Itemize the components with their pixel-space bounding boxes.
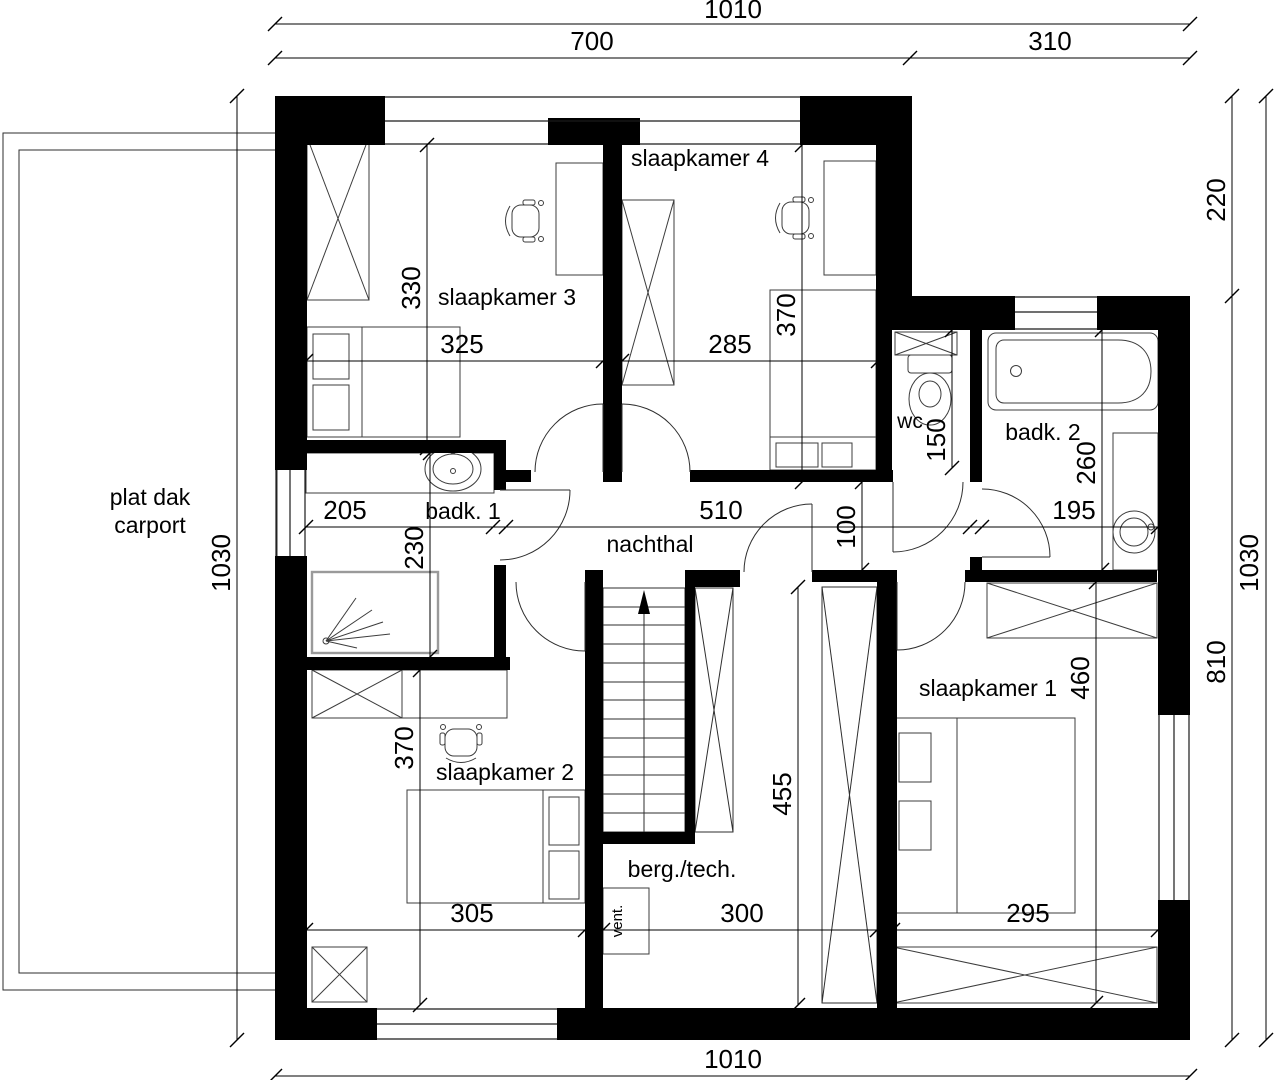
svg-text:305: 305 bbox=[450, 898, 493, 928]
wall-west-upper bbox=[275, 96, 307, 470]
label-berging: berg./tech. bbox=[628, 856, 737, 882]
svg-text:150: 150 bbox=[921, 418, 951, 461]
wall-north-pier bbox=[548, 118, 640, 145]
svg-text:510: 510 bbox=[699, 495, 742, 525]
pillow bbox=[313, 385, 349, 430]
wall-north-bath-left bbox=[876, 296, 1015, 330]
door-badkamer-2 bbox=[982, 489, 1050, 557]
svg-text:370: 370 bbox=[389, 726, 419, 769]
door-badkamer-1 bbox=[500, 490, 570, 560]
svg-text:1010: 1010 bbox=[704, 1044, 762, 1074]
wall-badk1-south bbox=[306, 657, 510, 670]
window-west-badkamer1 bbox=[276, 470, 305, 556]
svg-text:260: 260 bbox=[1071, 441, 1101, 484]
wall-east-upper bbox=[1158, 296, 1190, 715]
window-south-slaapkamer2 bbox=[377, 1009, 557, 1039]
window-north-badkamer2 bbox=[1015, 297, 1097, 329]
wall-south-right bbox=[557, 1008, 1190, 1040]
label-badkamer-1: badk. 1 bbox=[425, 498, 500, 524]
desk-chair bbox=[776, 197, 814, 239]
door-wc bbox=[893, 482, 963, 552]
pillow bbox=[313, 334, 349, 379]
furniture-slaapkamer-2 bbox=[312, 670, 585, 1002]
pillow bbox=[549, 797, 579, 845]
door-slaapkamer-1 bbox=[897, 582, 965, 650]
label-slaapkamer-3: slaapkamer 3 bbox=[438, 284, 576, 310]
desk bbox=[402, 670, 507, 718]
label-slaapkamer-1: slaapkamer 1 bbox=[919, 675, 1057, 701]
svg-text:285: 285 bbox=[708, 329, 751, 359]
wall-badk1-east-lower bbox=[494, 565, 506, 670]
wall-badk2-west-upper bbox=[970, 330, 982, 482]
svg-text:300: 300 bbox=[720, 898, 763, 928]
svg-text:230: 230 bbox=[399, 526, 429, 569]
pillow bbox=[899, 801, 931, 850]
svg-text:295: 295 bbox=[1006, 898, 1049, 928]
bathtub bbox=[988, 333, 1158, 410]
floor-plan-page: plat dak carport bbox=[0, 0, 1274, 1080]
svg-text:310: 310 bbox=[1028, 26, 1071, 56]
svg-text:1030: 1030 bbox=[1234, 534, 1264, 592]
svg-text:195: 195 bbox=[1052, 495, 1095, 525]
door-berging bbox=[744, 504, 812, 572]
wall-badk2-south bbox=[965, 570, 1157, 582]
desk bbox=[824, 161, 876, 275]
svg-text:700: 700 bbox=[570, 26, 613, 56]
wall-stairs-east bbox=[685, 570, 695, 844]
washbasin bbox=[1113, 433, 1158, 570]
wall-south-left bbox=[275, 1008, 377, 1040]
wall-west-lower bbox=[275, 556, 307, 1040]
wall-north-left bbox=[275, 96, 385, 145]
dimension-left-height: 1030 bbox=[206, 89, 244, 1047]
wall-wc-west bbox=[876, 330, 892, 482]
staircase bbox=[603, 588, 685, 832]
pillow bbox=[776, 443, 818, 467]
svg-text:100: 100 bbox=[831, 505, 861, 548]
door-slaapkamer-4 bbox=[622, 404, 690, 472]
label-nachthal: nachthal bbox=[607, 531, 694, 557]
wall-badk1-north bbox=[306, 440, 506, 453]
svg-text:1010: 1010 bbox=[704, 0, 762, 24]
floor-plan-drawing: plat dak carport bbox=[0, 0, 1274, 1080]
carport-label-line2: carport bbox=[114, 512, 186, 538]
dimension-right-height: 1030 bbox=[1234, 89, 1273, 1047]
door-slaapkamer-2 bbox=[516, 582, 585, 651]
label-badkamer-2: badk. 2 bbox=[1005, 419, 1080, 445]
svg-text:220: 220 bbox=[1201, 178, 1231, 221]
wall-badk2-west-lower bbox=[970, 557, 982, 582]
wall-badk1-east-upper bbox=[494, 440, 506, 490]
dimension-bottom-total: 1010 bbox=[268, 1044, 1197, 1080]
carport-outline-inner bbox=[19, 150, 277, 973]
svg-text:455: 455 bbox=[767, 772, 797, 815]
wall-sk3-sk4-divider bbox=[603, 140, 622, 482]
pillow bbox=[899, 733, 931, 782]
dimension-stair-zone-depth: 455 bbox=[767, 580, 805, 1012]
furniture-slaapkamer-1 bbox=[893, 583, 1157, 1003]
dimension-nachthal-width: 100 bbox=[831, 475, 869, 577]
fixtures-berging: vent. bbox=[603, 888, 649, 954]
svg-text:810: 810 bbox=[1201, 640, 1231, 683]
stair-direction-arrow bbox=[638, 590, 650, 614]
svg-text:205: 205 bbox=[323, 495, 366, 525]
wall-sk1-west bbox=[877, 570, 897, 1008]
dimension-top-split: 700 310 bbox=[268, 26, 1197, 65]
label-wc: wc bbox=[896, 410, 923, 433]
svg-text:1030: 1030 bbox=[206, 534, 236, 592]
wall-sk2-stairs bbox=[585, 570, 603, 1008]
svg-text:370: 370 bbox=[771, 293, 801, 336]
desk-chair bbox=[440, 725, 482, 763]
wall-hall-north-b bbox=[690, 470, 893, 482]
label-slaapkamer-4: slaapkamer 4 bbox=[631, 145, 769, 171]
desk-chair bbox=[506, 200, 544, 242]
desk bbox=[556, 163, 603, 275]
washbasin bbox=[425, 447, 481, 492]
wall-stairs-south bbox=[585, 832, 695, 844]
carport-label-line1: plat dak bbox=[110, 484, 191, 510]
ventilation-label: vent. bbox=[609, 905, 626, 938]
window-east-slaapkamer1 bbox=[1159, 715, 1189, 900]
pillow bbox=[822, 443, 852, 467]
svg-text:460: 460 bbox=[1065, 656, 1095, 699]
svg-text:330: 330 bbox=[396, 266, 426, 309]
furniture-slaapkamer-4 bbox=[622, 161, 876, 470]
door-slaapkamer-3 bbox=[535, 404, 603, 472]
wall-setback bbox=[876, 96, 912, 330]
pillow bbox=[549, 851, 579, 899]
svg-text:325: 325 bbox=[440, 329, 483, 359]
shower bbox=[312, 572, 438, 653]
dimension-bottom-chain: 305 300 295 bbox=[299, 898, 1165, 937]
label-slaapkamer-2: slaapkamer 2 bbox=[436, 759, 574, 785]
